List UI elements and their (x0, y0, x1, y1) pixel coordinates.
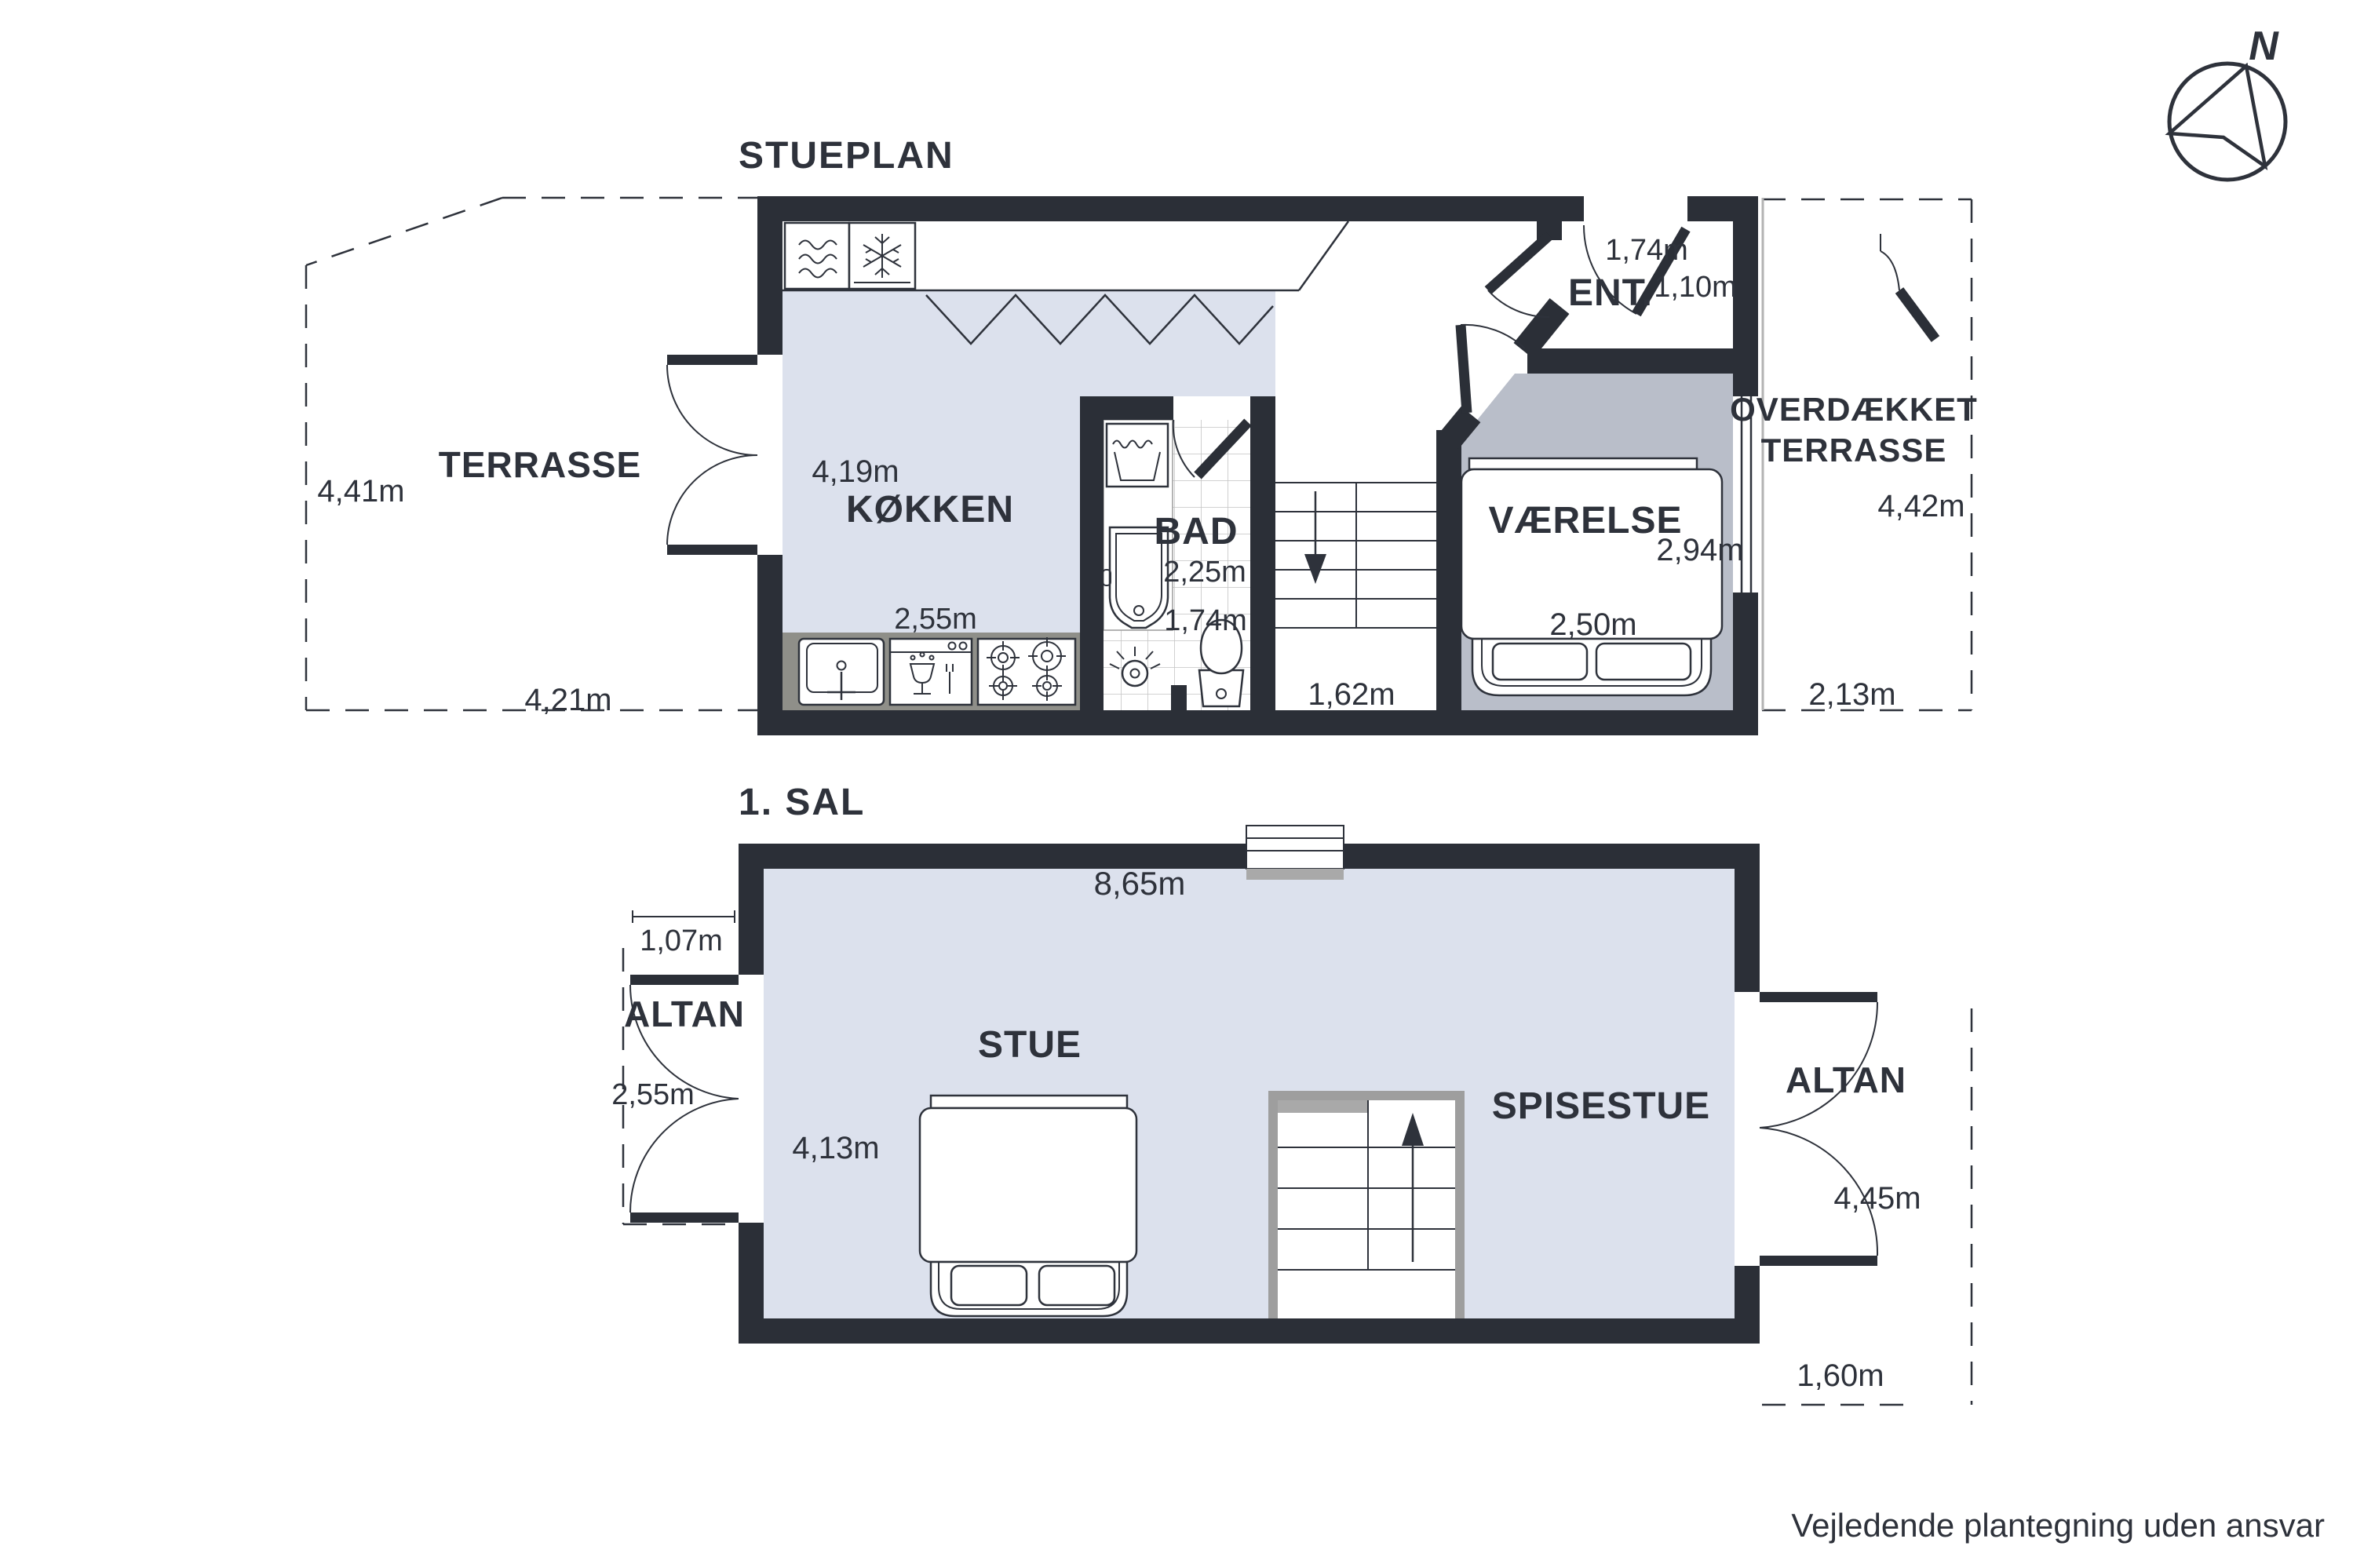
terrace-height: 4,41m (317, 474, 404, 509)
balcony-left-depth: 2,55m (611, 1078, 695, 1111)
balcony-left-label: ALTAN (624, 994, 745, 1034)
ground-floor-plan: STUEPLAN TERRASSE 4,41m 4,21m 4,19m KØKK… (306, 135, 1978, 735)
hall-stair-width: 1,62m (1308, 677, 1395, 712)
kitchen-counter-bottom (783, 633, 1080, 710)
terrace-width: 4,21m (524, 683, 611, 717)
floorplan-drawing: STUEPLAN TERRASSE 4,41m 4,21m 4,19m KØKK… (0, 0, 2353, 1568)
bath-label: BAD (1155, 511, 1239, 552)
living-width: 4,13m (792, 1131, 879, 1165)
bath-stub-wall (1171, 685, 1187, 710)
dishwasher-icon (890, 639, 972, 705)
bath-width: 2,25m (1163, 556, 1246, 589)
bath-depth: 1,74m (1164, 604, 1247, 637)
terrace-label: TERRASSE (439, 444, 641, 485)
bed-icon (1461, 458, 1722, 695)
balcony-left-dim-line (633, 910, 735, 923)
balcony-left (623, 910, 739, 1224)
kitchen-width: 4,19m (812, 454, 899, 489)
bath-wall-top (1080, 396, 1173, 420)
bedroom-wall-left (1436, 430, 1461, 710)
covered-terrace-label-1: OVERDÆKKET (1730, 391, 1978, 428)
stove-icon (978, 637, 1075, 705)
covered-terrace-height: 4,42m (1877, 489, 1964, 523)
bedroom-height: 2,94m (1656, 533, 1743, 567)
entry-label: ENT. (1568, 272, 1653, 314)
washing-machine-icon (1107, 424, 1168, 487)
first-floor-width: 8,65m (1094, 865, 1186, 902)
floorplan-page: STUEPLAN TERRASSE 4,41m 4,21m 4,19m KØKK… (0, 0, 2353, 1568)
ground-floor-title: STUEPLAN (739, 135, 954, 177)
covered-terrace-label-2: TERRASSE (1761, 432, 1947, 469)
living-label: STUE (978, 1024, 1082, 1066)
bedroom-width: 2,50m (1549, 607, 1636, 642)
bedroom-chamfer-wall-low (1449, 414, 1471, 441)
kitchen-label: KØKKEN (846, 489, 1014, 531)
bath-wall-right (1250, 396, 1275, 710)
balcony-right-width: 1,60m (1797, 1358, 1884, 1393)
entry-bottom-wall (1527, 348, 1758, 374)
first-floor-window (1246, 826, 1344, 880)
covered-terrace-width: 2,13m (1808, 677, 1895, 712)
dining-label: SPISESTUE (1492, 1085, 1710, 1127)
entry-door-width: 1,10m (1654, 271, 1737, 304)
balcony-right-height: 4,45m (1833, 1181, 1921, 1216)
compass-north-label: N (2249, 24, 2279, 69)
freezer-icon (849, 223, 915, 289)
kitchen-floor-upper (783, 290, 1275, 396)
sink-icon (799, 639, 884, 705)
balcony-left-door: 1,07m (640, 924, 723, 957)
compass-icon: N (2169, 24, 2286, 180)
first-floor-plan: 1. SAL 8,65m STUE 4,13m SPISESTUE ALTAN … (611, 782, 1972, 1405)
first-floor-title: 1. SAL (739, 782, 865, 823)
terrace-french-doors (667, 355, 757, 555)
bedroom-label: VÆRELSE (1488, 500, 1682, 542)
oven-icon (785, 223, 849, 289)
bathroom (1080, 396, 1275, 710)
staircase-up (1268, 1091, 1465, 1318)
sofa-icon (920, 1096, 1136, 1316)
disclaimer-text: Vejledende plantegning uden ansvar (1791, 1507, 2325, 1544)
kitchen-counter-width: 2,55m (894, 603, 977, 636)
terrace-gate-door (1881, 234, 1935, 339)
entry-width: 1,74m (1605, 234, 1688, 267)
bath-wall-left (1080, 396, 1104, 710)
balcony-right-label: ALTAN (1786, 1059, 1906, 1100)
